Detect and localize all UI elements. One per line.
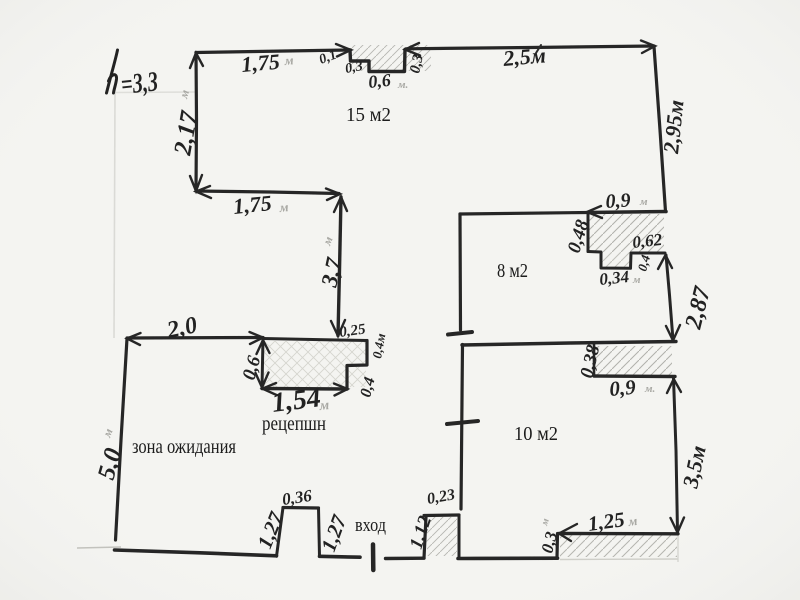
svg-text:м: м	[278, 199, 290, 215]
svg-text:м: м	[632, 274, 641, 286]
svg-text:10 м2: 10 м2	[514, 423, 558, 445]
svg-text:8 м2: 8 м2	[497, 260, 528, 282]
svg-text:1,75: 1,75	[240, 49, 281, 77]
svg-text:1,75: 1,75	[232, 190, 273, 219]
svg-text:15 м2: 15 м2	[346, 104, 391, 126]
svg-text:м.: м.	[644, 383, 655, 395]
svg-text:0,6: 0,6	[367, 70, 391, 92]
svg-text:м: м	[283, 52, 294, 68]
svg-text:вход: вход	[355, 515, 386, 536]
svg-text:м.: м.	[397, 79, 408, 91]
svg-text:0,3: 0,3	[344, 59, 364, 77]
svg-text:м: м	[639, 196, 648, 208]
svg-text:рецепшн: рецепшн	[262, 413, 326, 435]
svg-text:м: м	[318, 398, 331, 414]
svg-text:зона ожидания: зона ожидания	[132, 436, 236, 458]
svg-text:1,25: 1,25	[586, 507, 626, 536]
svg-text:0,62: 0,62	[631, 230, 663, 252]
svg-text:0,34: 0,34	[598, 267, 630, 289]
svg-text:0,9: 0,9	[605, 189, 631, 213]
svg-text:0,9: 0,9	[608, 375, 637, 401]
svg-text:=3,3: =3,3	[119, 66, 159, 101]
